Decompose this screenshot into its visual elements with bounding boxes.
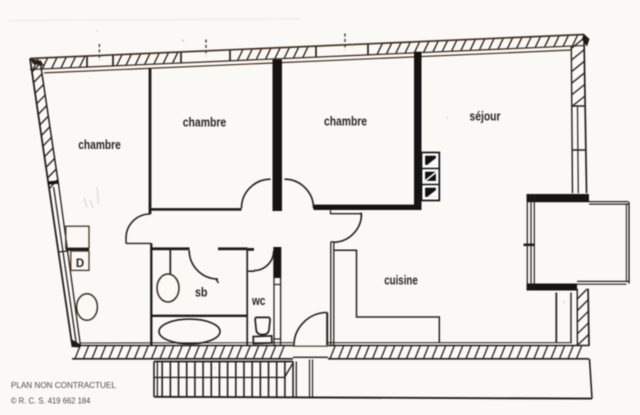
svg-text:sb: sb [195, 284, 208, 299]
svg-text:chambre: chambre [183, 115, 227, 130]
svg-text:cuisine: cuisine [384, 272, 418, 287]
svg-text:D: D [76, 258, 84, 270]
svg-text:PLAN NON CONTRACTUEL: PLAN NON CONTRACTUEL [11, 380, 116, 390]
svg-text:chambre: chambre [78, 137, 121, 152]
svg-text:chambre: chambre [324, 114, 367, 129]
svg-text:wc: wc [251, 293, 265, 308]
svg-text:© R. C. S. 419 662 184: © R. C. S. 419 662 184 [11, 395, 91, 405]
svg-text:séjour: séjour [470, 108, 501, 123]
